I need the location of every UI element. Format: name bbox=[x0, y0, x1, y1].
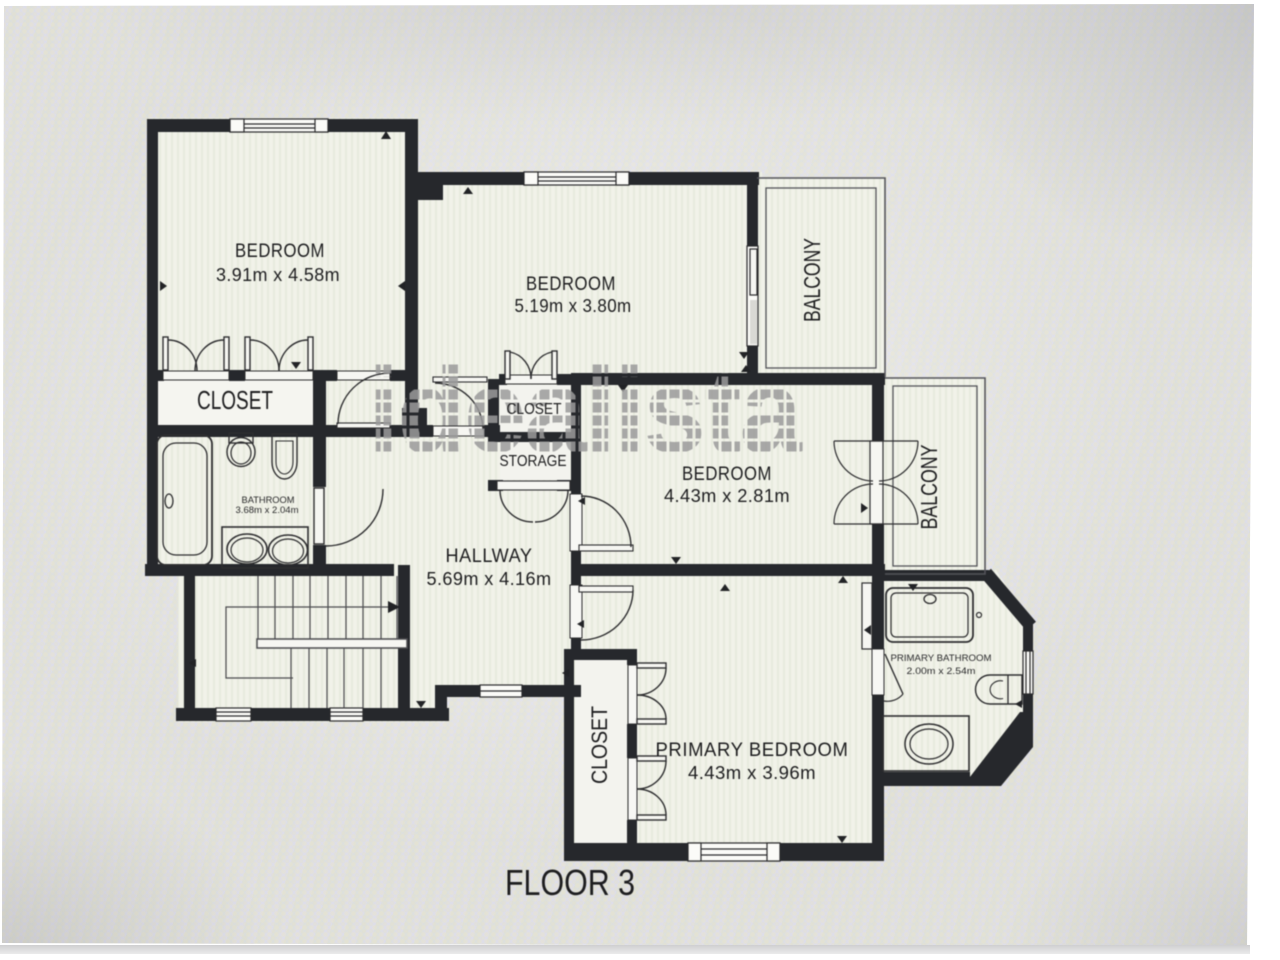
svg-text:BATHROOM: BATHROOM bbox=[242, 495, 295, 505]
svg-text:HALLWAY: HALLWAY bbox=[446, 546, 533, 567]
svg-text:FLOOR 3: FLOOR 3 bbox=[505, 862, 635, 903]
svg-text:CLOSET: CLOSET bbox=[197, 385, 273, 415]
svg-text:4.43m x 2.81m: 4.43m x 2.81m bbox=[664, 486, 790, 506]
svg-text:BALCONY: BALCONY bbox=[916, 445, 942, 530]
svg-text:5.69m x 4.16m: 5.69m x 4.16m bbox=[427, 569, 552, 589]
svg-text:BEDROOM: BEDROOM bbox=[526, 274, 616, 295]
svg-text:PRIMARY BATHROOM: PRIMARY BATHROOM bbox=[891, 653, 992, 663]
svg-text:2.00m x 2.54m: 2.00m x 2.54m bbox=[907, 666, 976, 676]
svg-text:CLOSET: CLOSET bbox=[507, 401, 562, 418]
svg-text:3.91m x 4.58m: 3.91m x 4.58m bbox=[216, 265, 340, 285]
svg-text:STORAGE: STORAGE bbox=[500, 453, 567, 470]
svg-text:5.19m x 3.80m: 5.19m x 3.80m bbox=[515, 296, 632, 316]
svg-text:3.68m x 2.04m: 3.68m x 2.04m bbox=[236, 505, 299, 515]
svg-text:BALCONY: BALCONY bbox=[799, 238, 825, 322]
svg-text:CLOSET: CLOSET bbox=[587, 706, 612, 784]
svg-text:BEDROOM: BEDROOM bbox=[235, 241, 325, 262]
svg-text:4.43m x 3.96m: 4.43m x 3.96m bbox=[688, 763, 816, 783]
svg-text:BEDROOM: BEDROOM bbox=[682, 464, 772, 485]
svg-text:PRIMARY BEDROOM: PRIMARY BEDROOM bbox=[656, 740, 849, 761]
